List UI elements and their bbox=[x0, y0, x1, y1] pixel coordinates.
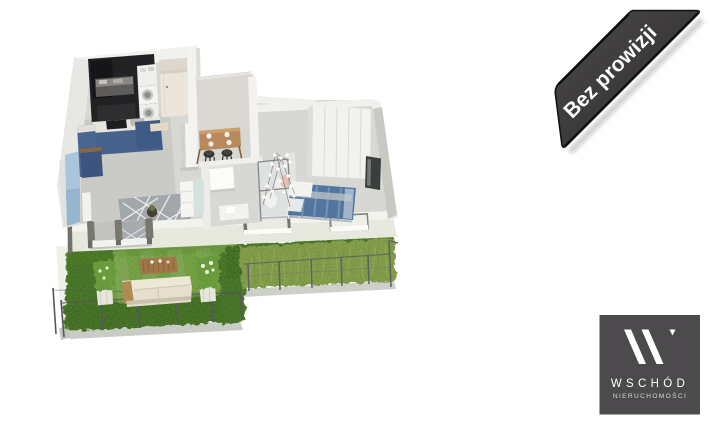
svg-text:NIERUCHOMOŚCI: NIERUCHOMOŚCI bbox=[613, 391, 687, 400]
svg-text:WSCHÓD: WSCHÓD bbox=[611, 377, 689, 390]
